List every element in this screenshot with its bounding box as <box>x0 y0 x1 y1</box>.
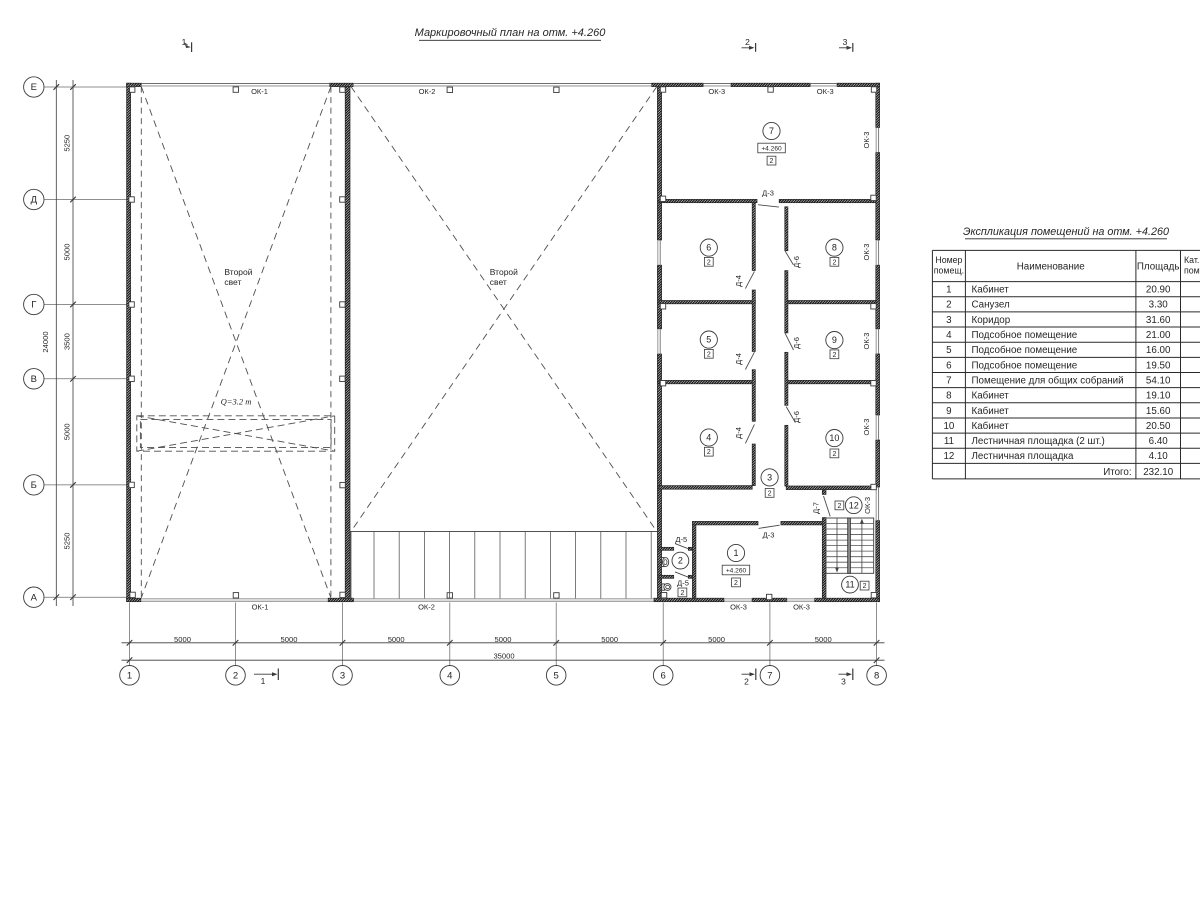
svg-text:1: 1 <box>127 671 132 682</box>
svg-text:12: 12 <box>849 500 859 510</box>
svg-text:31.60: 31.60 <box>1146 315 1171 326</box>
svg-text:6.40: 6.40 <box>1149 436 1169 447</box>
svg-text:Д-4: Д-4 <box>734 275 743 287</box>
svg-text:Итого:: Итого: <box>1103 467 1131 478</box>
svg-text:ОК-2: ОК-2 <box>419 87 436 96</box>
svg-text:Подсобное помещение: Подсобное помещение <box>972 345 1078 356</box>
svg-text:ОК-1: ОК-1 <box>251 87 268 96</box>
svg-text:3500: 3500 <box>63 333 72 350</box>
svg-text:ОК-3: ОК-3 <box>708 87 725 96</box>
svg-text:2: 2 <box>832 352 836 359</box>
svg-text:ОК-1: ОК-1 <box>252 603 269 612</box>
svg-text:Наименование: Наименование <box>1017 262 1085 273</box>
svg-text:Кабинет: Кабинет <box>972 391 1010 402</box>
svg-text:15.60: 15.60 <box>1146 406 1171 417</box>
svg-text:ОК-3: ОК-3 <box>862 244 871 261</box>
svg-text:232.10: 232.10 <box>1143 467 1174 478</box>
svg-text:Д-4: Д-4 <box>734 353 743 365</box>
svg-text:10: 10 <box>943 421 954 432</box>
svg-text:2: 2 <box>734 580 738 587</box>
svg-text:ОК-3: ОК-3 <box>862 333 871 350</box>
svg-text:7: 7 <box>767 671 772 682</box>
svg-text:свет: свет <box>490 277 507 287</box>
svg-text:2: 2 <box>745 37 750 47</box>
svg-text:8: 8 <box>946 391 952 402</box>
svg-text:6: 6 <box>661 671 666 682</box>
svg-text:Санузел: Санузел <box>972 300 1010 311</box>
svg-text:11: 11 <box>944 436 954 447</box>
svg-text:11: 11 <box>845 580 854 590</box>
svg-text:4.10: 4.10 <box>1149 451 1169 462</box>
svg-text:В: В <box>31 374 37 385</box>
svg-text:2: 2 <box>863 583 867 590</box>
svg-text:1: 1 <box>946 285 951 296</box>
svg-text:1: 1 <box>261 676 266 686</box>
svg-text:5000: 5000 <box>174 635 191 644</box>
svg-text:5000: 5000 <box>815 635 832 644</box>
svg-text:4: 4 <box>447 671 452 682</box>
svg-text:16.00: 16.00 <box>1146 345 1171 356</box>
svg-text:8: 8 <box>874 671 879 682</box>
svg-text:А: А <box>31 592 38 603</box>
svg-text:Д-4: Д-4 <box>734 427 743 439</box>
svg-text:Q=3.2 m: Q=3.2 m <box>221 397 252 407</box>
svg-text:+4.260: +4.260 <box>726 567 747 574</box>
svg-text:2: 2 <box>680 590 684 597</box>
svg-text:5000: 5000 <box>708 635 725 644</box>
svg-text:Лестничная площадка: Лестничная площадка <box>972 451 1074 462</box>
svg-text:3: 3 <box>843 37 848 47</box>
svg-text:5000: 5000 <box>281 635 298 644</box>
svg-text:5000: 5000 <box>601 635 618 644</box>
svg-text:ОК-2: ОК-2 <box>418 603 435 612</box>
svg-text:+4.260: +4.260 <box>761 145 782 152</box>
svg-text:5000: 5000 <box>388 635 405 644</box>
svg-text:пом.: пом. <box>1184 266 1200 276</box>
svg-text:20.50: 20.50 <box>1146 421 1171 432</box>
svg-text:ОК-3: ОК-3 <box>730 603 747 612</box>
svg-text:21.00: 21.00 <box>1146 330 1171 341</box>
svg-text:Кабинет: Кабинет <box>972 421 1010 432</box>
svg-text:7: 7 <box>946 375 951 386</box>
svg-text:Площадь: Площадь <box>1137 262 1180 273</box>
svg-text:Кабинет: Кабинет <box>972 285 1010 296</box>
svg-text:3.30: 3.30 <box>1149 300 1169 311</box>
svg-text:3: 3 <box>841 677 846 687</box>
svg-text:Маркировочный план на отм. +4.: Маркировочный план на отм. +4.260 <box>415 27 607 39</box>
svg-text:1: 1 <box>733 548 738 558</box>
svg-text:ОК-3: ОК-3 <box>862 419 871 436</box>
svg-text:Д-6: Д-6 <box>792 411 801 423</box>
svg-text:2: 2 <box>770 158 774 165</box>
svg-text:2: 2 <box>707 259 711 266</box>
svg-text:5000: 5000 <box>495 635 512 644</box>
svg-text:5: 5 <box>706 335 711 345</box>
svg-text:3: 3 <box>946 315 952 326</box>
svg-text:Помещение для общих собраний: Помещение для общих собраний <box>972 375 1124 386</box>
svg-text:Кат.: Кат. <box>1184 255 1199 265</box>
svg-text:35000: 35000 <box>493 651 514 660</box>
svg-text:Е: Е <box>31 82 37 93</box>
svg-text:2: 2 <box>837 503 841 510</box>
svg-text:5250: 5250 <box>63 533 72 550</box>
svg-text:4: 4 <box>946 330 952 341</box>
svg-text:Подсобное помещение: Подсобное помещение <box>972 360 1078 371</box>
svg-text:Д-6: Д-6 <box>792 337 801 349</box>
svg-text:ОК-3: ОК-3 <box>863 497 872 514</box>
svg-text:3: 3 <box>340 671 345 682</box>
svg-text:Д: Д <box>31 195 38 206</box>
svg-text:19.10: 19.10 <box>1146 391 1171 402</box>
svg-text:6: 6 <box>706 243 711 253</box>
svg-text:Б: Б <box>31 480 37 491</box>
svg-text:54.10: 54.10 <box>1146 375 1171 386</box>
svg-text:2: 2 <box>832 259 836 266</box>
svg-text:Номер: Номер <box>935 255 962 265</box>
svg-text:5: 5 <box>946 345 952 356</box>
svg-text:Д-6: Д-6 <box>792 256 801 268</box>
svg-text:2: 2 <box>233 671 238 682</box>
svg-text:Подсобное помещение: Подсобное помещение <box>972 330 1078 341</box>
svg-text:6: 6 <box>946 360 952 371</box>
svg-text:2: 2 <box>768 490 772 497</box>
svg-text:5000: 5000 <box>63 423 72 440</box>
svg-text:5250: 5250 <box>63 135 72 152</box>
svg-text:Д-7: Д-7 <box>812 502 821 514</box>
svg-text:Второй: Второй <box>224 267 252 277</box>
svg-text:Второй: Второй <box>490 267 518 277</box>
svg-text:8: 8 <box>832 243 837 253</box>
svg-text:12: 12 <box>943 451 954 462</box>
svg-text:9: 9 <box>832 335 837 345</box>
svg-text:ОК-3: ОК-3 <box>862 132 871 149</box>
svg-text:7: 7 <box>769 126 774 136</box>
svg-text:Д-5: Д-5 <box>675 535 687 544</box>
svg-text:свет: свет <box>224 277 241 287</box>
svg-text:Коридор: Коридор <box>972 315 1011 326</box>
svg-text:помещ.: помещ. <box>934 266 964 276</box>
svg-text:Экспликация помещений на отм.: Экспликация помещений на отм. +4.260 <box>963 226 1169 238</box>
svg-text:Д-3: Д-3 <box>763 531 775 540</box>
svg-text:24000: 24000 <box>41 331 50 352</box>
svg-text:Д-5: Д-5 <box>677 579 689 588</box>
svg-text:2: 2 <box>832 451 836 458</box>
svg-text:2: 2 <box>707 449 711 456</box>
svg-text:Г: Г <box>31 300 36 311</box>
svg-text:10: 10 <box>829 433 839 443</box>
svg-text:2: 2 <box>744 677 749 687</box>
svg-text:9: 9 <box>946 406 951 417</box>
svg-text:20.90: 20.90 <box>1146 285 1171 296</box>
svg-text:3: 3 <box>767 472 772 482</box>
svg-text:2: 2 <box>707 351 711 358</box>
svg-text:ОК-3: ОК-3 <box>817 87 834 96</box>
svg-text:Лестничная площадка (2 шт.): Лестничная площадка (2 шт.) <box>972 436 1105 447</box>
svg-text:Д-3: Д-3 <box>762 188 774 197</box>
svg-text:Кабинет: Кабинет <box>972 406 1010 417</box>
svg-text:2: 2 <box>946 300 951 311</box>
svg-text:4: 4 <box>706 433 711 443</box>
svg-text:5: 5 <box>554 671 559 682</box>
svg-text:ОК-3: ОК-3 <box>793 603 810 612</box>
svg-text:5000: 5000 <box>63 244 72 261</box>
svg-text:2: 2 <box>678 556 683 566</box>
svg-text:19.50: 19.50 <box>1146 360 1171 371</box>
